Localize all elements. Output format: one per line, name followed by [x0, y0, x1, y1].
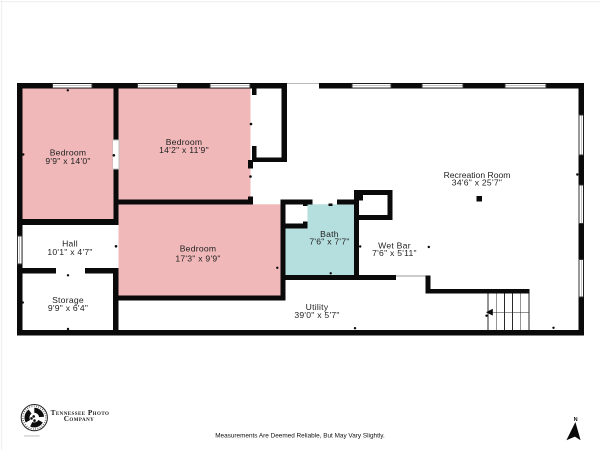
svg-text:10'1" x 4'7": 10'1" x 4'7": [47, 247, 92, 257]
svg-text:14'2" x 11'9": 14'2" x 11'9": [159, 145, 209, 155]
svg-text:7'6" x 5'11": 7'6" x 5'11": [372, 248, 417, 258]
svg-text:34'6" x 25'7": 34'6" x 25'7": [452, 178, 502, 188]
svg-text:39'0" x 5'7": 39'0" x 5'7": [294, 310, 339, 320]
svg-text:Bedroom: Bedroom: [180, 244, 217, 254]
svg-text:9'9" x 6'4": 9'9" x 6'4": [48, 303, 88, 313]
svg-text:N: N: [574, 417, 578, 423]
svg-text:9'9" x 14'0": 9'9" x 14'0": [45, 156, 90, 166]
svg-text:Measurements Are Deemed Reliab: Measurements Are Deemed Reliable, But Ma…: [215, 433, 385, 440]
svg-text:7'6" x 7'7": 7'6" x 7'7": [309, 236, 349, 246]
svg-text:Company: Company: [64, 415, 94, 423]
svg-text:17'3" x 9'9": 17'3" x 9'9": [175, 253, 220, 263]
